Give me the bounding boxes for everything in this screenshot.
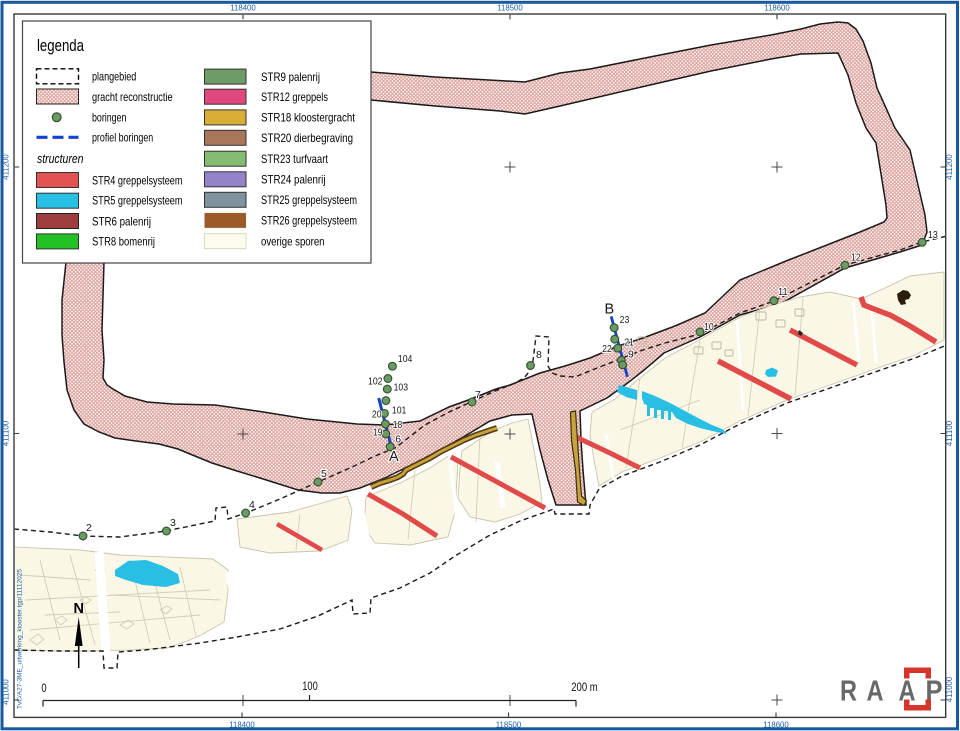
svg-text:STR6 palenrij: STR6 palenrij [92, 214, 151, 228]
svg-text:STR9 palenrij: STR9 palenrij [261, 70, 320, 84]
svg-text:9: 9 [628, 348, 634, 360]
svg-text:118500: 118500 [497, 4, 523, 13]
svg-text:STR26 greppelsysteem: STR26 greppelsysteem [261, 214, 357, 228]
svg-text:5: 5 [321, 468, 327, 480]
svg-text:22: 22 [602, 343, 612, 355]
svg-text:R: R [840, 676, 857, 708]
svg-text:19: 19 [373, 427, 383, 439]
svg-text:103: 103 [394, 381, 409, 393]
svg-text:N: N [73, 601, 83, 617]
svg-text:200 m: 200 m [571, 680, 598, 694]
svg-text:boringen: boringen [92, 111, 126, 125]
svg-text:411000: 411000 [2, 679, 11, 705]
svg-text:118600: 118600 [763, 721, 789, 730]
svg-text:4: 4 [249, 499, 255, 511]
svg-text:A: A [389, 449, 399, 465]
svg-text:411200: 411200 [2, 154, 11, 180]
svg-text:411200: 411200 [945, 154, 954, 180]
svg-text:13: 13 [928, 229, 938, 241]
svg-text:2: 2 [86, 522, 92, 534]
svg-text:STR23 turfvaart: STR23 turfvaart [261, 152, 329, 166]
svg-text:411100: 411100 [945, 420, 954, 446]
svg-text:7: 7 [475, 389, 481, 401]
svg-text:A: A [867, 676, 884, 708]
svg-text:12: 12 [851, 252, 861, 264]
svg-text:STR24 palenrij: STR24 palenrij [261, 173, 326, 187]
svg-text:6: 6 [395, 433, 401, 445]
svg-text:STR20 dierbegraving: STR20 dierbegraving [261, 131, 353, 145]
svg-text:118500: 118500 [496, 721, 522, 730]
svg-text:B: B [605, 302, 615, 318]
svg-text:0: 0 [41, 681, 46, 695]
svg-text:104: 104 [398, 353, 413, 365]
svg-text:411000: 411000 [945, 676, 954, 702]
svg-text:legenda: legenda [37, 36, 84, 55]
svg-text:23: 23 [620, 314, 630, 326]
svg-text:3: 3 [170, 517, 176, 529]
svg-text:STR25 greppelsysteem: STR25 greppelsysteem [261, 193, 357, 207]
svg-text:STR5 greppelsysteem: STR5 greppelsysteem [92, 194, 183, 208]
svg-text:11: 11 [778, 286, 788, 298]
svg-text:structuren: structuren [37, 152, 84, 166]
svg-text:STR8 bomenrij: STR8 bomenrij [92, 235, 155, 249]
svg-text:10: 10 [704, 321, 714, 333]
svg-text:118400: 118400 [229, 721, 255, 730]
svg-text:plangebied: plangebied [92, 70, 136, 84]
svg-text:STR4 greppelsysteem: STR4 greppelsysteem [92, 173, 183, 187]
svg-text:STR12 greppels: STR12 greppels [261, 90, 328, 104]
svg-text:STR18 kloostergracht: STR18 kloostergracht [261, 111, 356, 125]
svg-text:118400: 118400 [230, 4, 256, 13]
svg-text:18: 18 [393, 419, 403, 431]
svg-text:100: 100 [302, 679, 318, 693]
svg-text:411100: 411100 [2, 420, 11, 446]
svg-text:TvC/A27-3ME_uitwerking_klooste: TvC/A27-3ME_uitwerking_klooster.tgp/1111… [17, 569, 24, 709]
svg-text:gracht reconstructie: gracht reconstructie [92, 90, 173, 104]
svg-text:overige sporen: overige sporen [261, 234, 325, 248]
svg-text:118600: 118600 [764, 4, 790, 13]
svg-text:profiel boringen: profiel boringen [92, 131, 153, 145]
svg-text:101: 101 [392, 404, 407, 416]
svg-text:8: 8 [536, 349, 542, 361]
svg-text:21: 21 [624, 337, 634, 349]
svg-text:102: 102 [368, 375, 383, 387]
svg-text:20: 20 [372, 409, 382, 421]
